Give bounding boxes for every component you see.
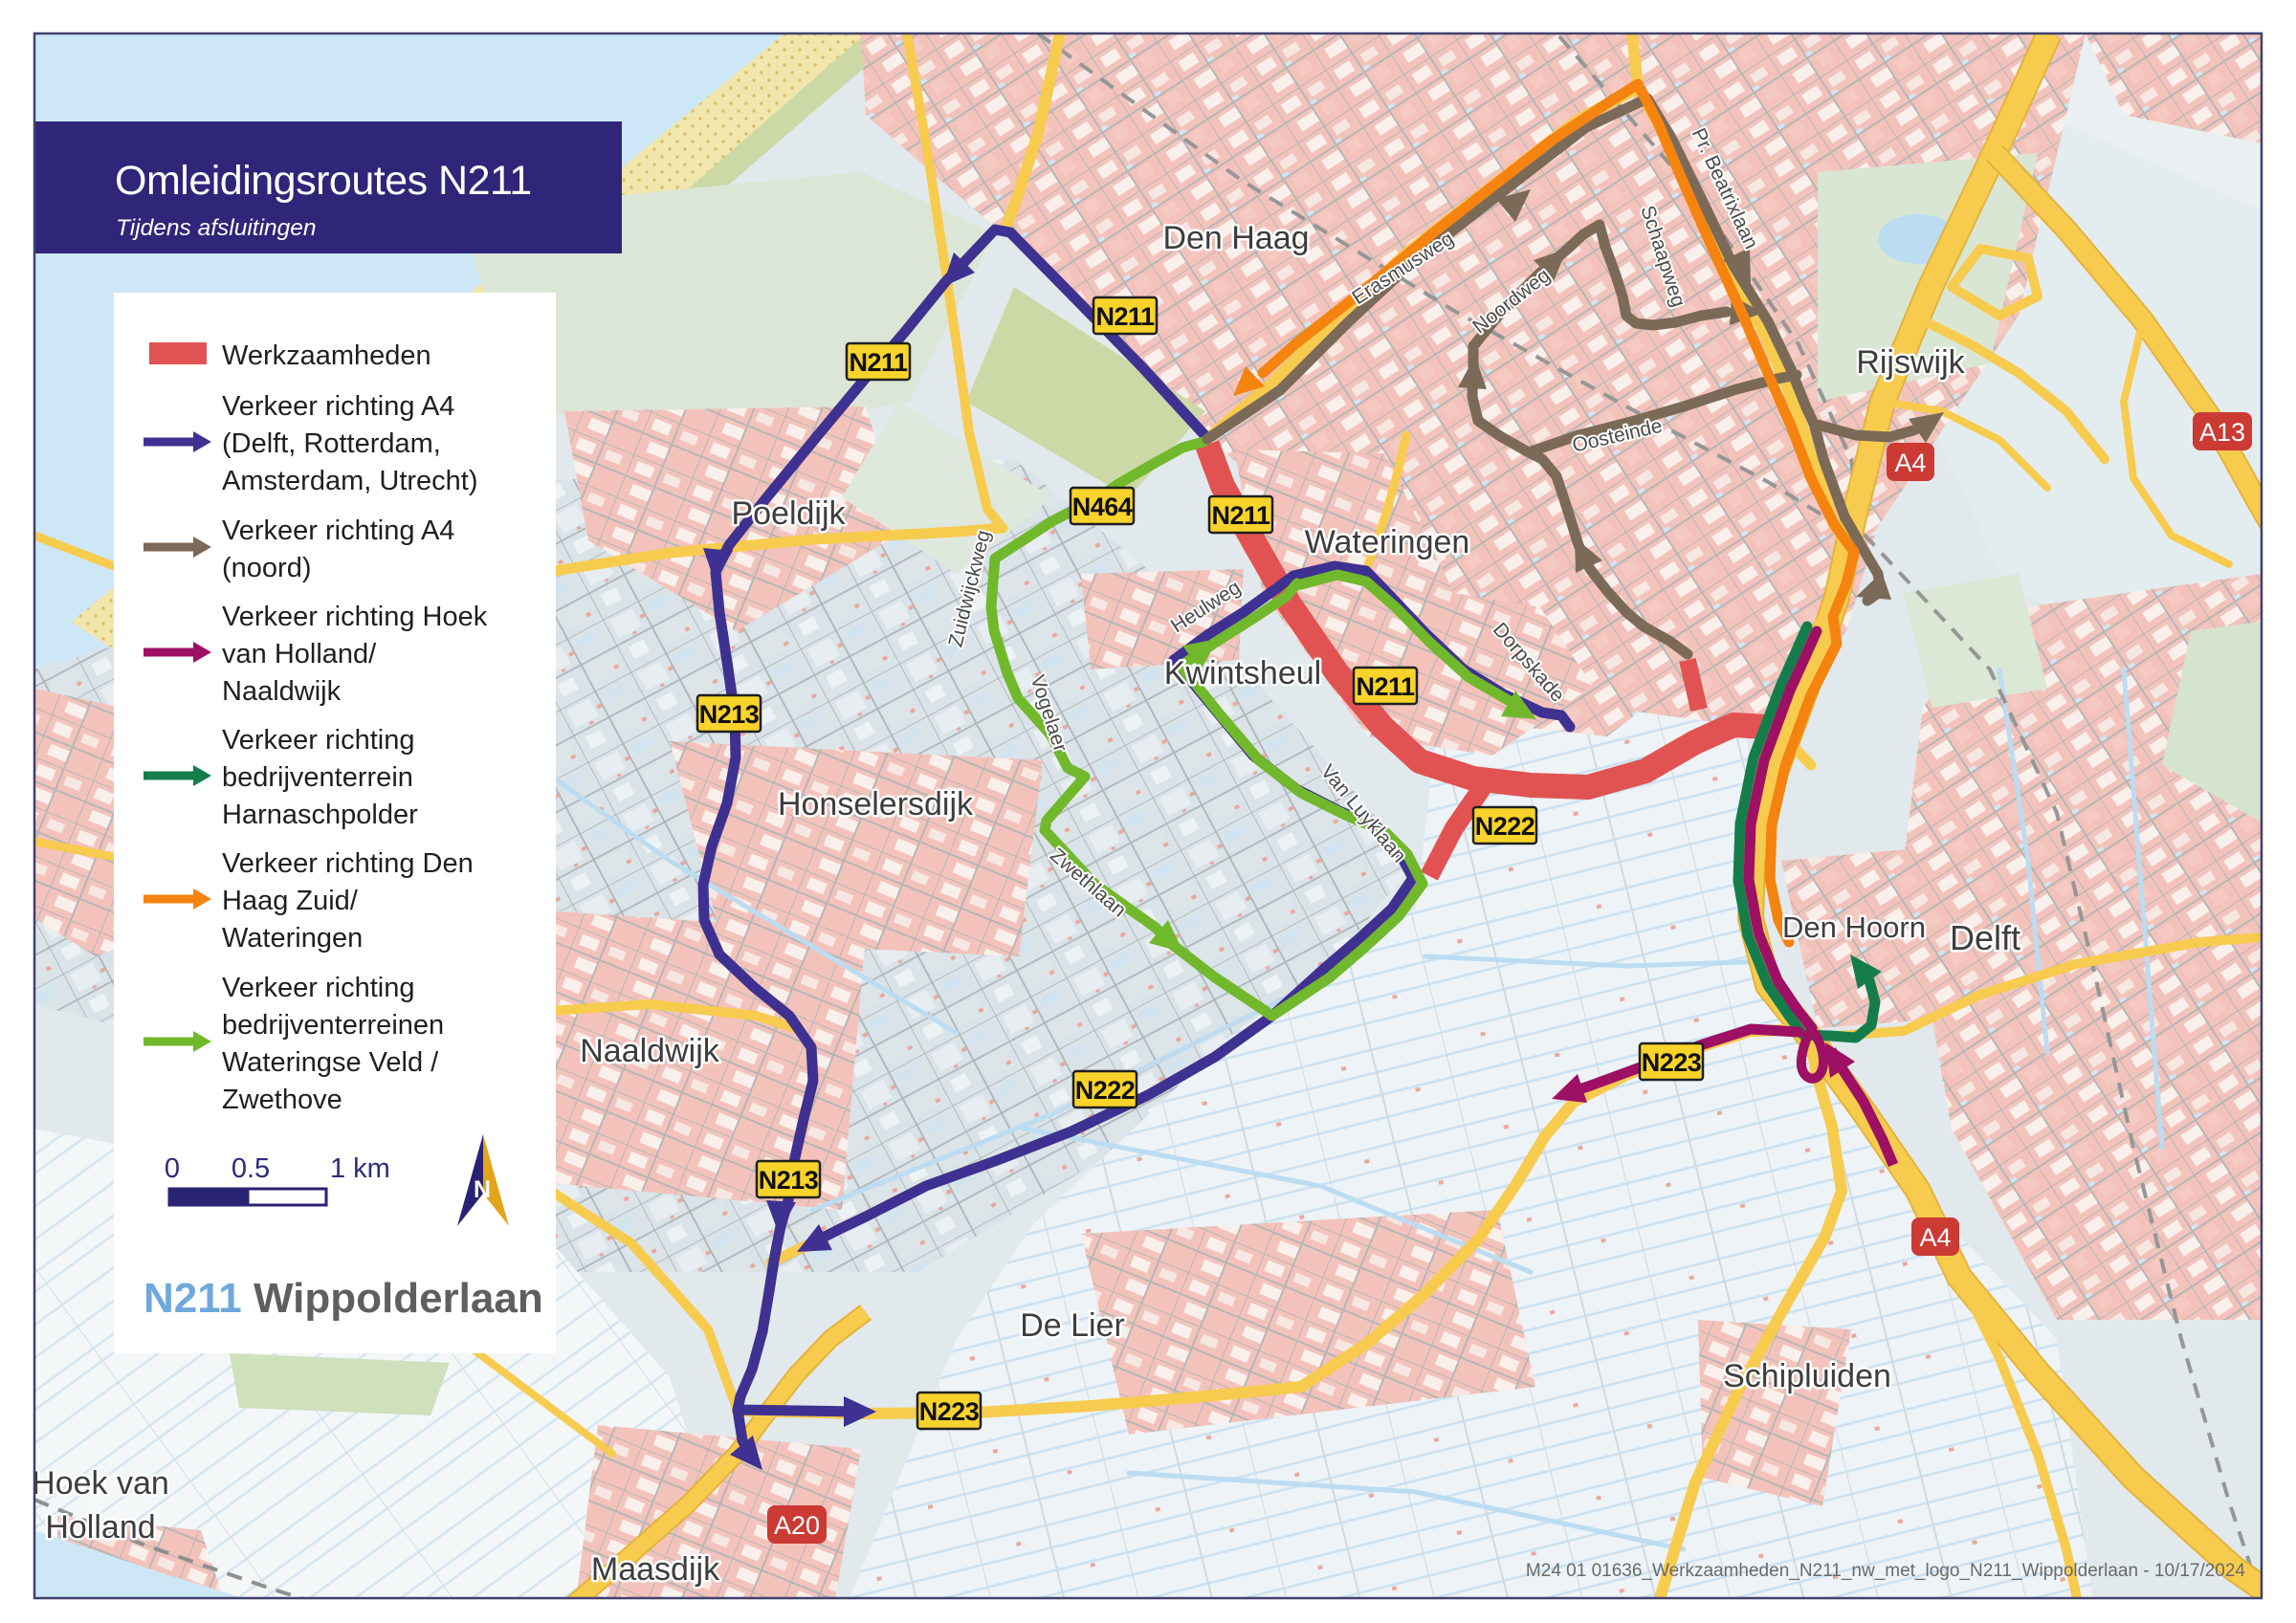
svg-text:N211: N211 <box>849 348 908 377</box>
svg-text:Haag Zuid/: Haag Zuid/ <box>222 886 359 916</box>
svg-text:N223: N223 <box>919 1397 980 1426</box>
svg-text:Verkeer richting Den: Verkeer richting Den <box>222 848 474 879</box>
svg-text:Naaldwijk: Naaldwijk <box>222 676 342 707</box>
svg-text:0: 0 <box>165 1153 180 1184</box>
svg-text:Harnaschpolder: Harnaschpolder <box>222 800 418 830</box>
svg-text:bedrijventerreinen: bedrijventerreinen <box>222 1010 444 1041</box>
svg-text:Wateringen: Wateringen <box>222 923 363 954</box>
svg-text:Wateringse Veld /: Wateringse Veld / <box>222 1047 439 1078</box>
svg-text:M24 01 01636_Werkzaamheden_N21: M24 01 01636_Werkzaamheden_N211_nw_met_l… <box>1526 1561 2246 1581</box>
svg-text:N223: N223 <box>1642 1048 1702 1077</box>
svg-text:Poeldijk: Poeldijk <box>731 495 846 532</box>
svg-text:Verkeer richting A4: Verkeer richting A4 <box>222 515 454 546</box>
svg-text:0.5: 0.5 <box>232 1153 270 1184</box>
svg-text:Werkzaamheden: Werkzaamheden <box>222 340 431 371</box>
svg-text:Holland: Holland <box>45 1509 155 1546</box>
svg-text:Zwethove: Zwethove <box>222 1085 342 1115</box>
svg-text:N213: N213 <box>759 1166 819 1195</box>
svg-text:Kwintsheul: Kwintsheul <box>1164 655 1321 691</box>
svg-text:Hoek van: Hoek van <box>32 1465 169 1502</box>
svg-text:Verkeer richting: Verkeer richting <box>222 725 415 756</box>
svg-text:N211: N211 <box>1095 302 1155 331</box>
svg-text:Verkeer richting A4: Verkeer richting A4 <box>222 391 454 422</box>
svg-text:N211 Wippolderlaan: N211 Wippolderlaan <box>143 1275 543 1322</box>
svg-text:Den Haag: Den Haag <box>1162 220 1309 256</box>
svg-text:Verkeer richting: Verkeer richting <box>222 973 415 1003</box>
svg-text:Maasdijk: Maasdijk <box>591 1551 720 1588</box>
svg-text:Naaldwijk: Naaldwijk <box>580 1033 719 1069</box>
svg-text:Omleidingsroutes N211: Omleidingsroutes N211 <box>115 158 532 204</box>
svg-text:Schipluiden: Schipluiden <box>1723 1358 1891 1394</box>
svg-text:N213: N213 <box>699 700 760 729</box>
svg-text:N464: N464 <box>1072 493 1133 521</box>
svg-text:N222: N222 <box>1475 812 1535 841</box>
svg-text:Honselersdijk: Honselersdijk <box>778 786 974 822</box>
svg-text:N: N <box>474 1176 491 1203</box>
svg-text:N211: N211 <box>1356 672 1415 701</box>
svg-text:Verkeer richting Hoek: Verkeer richting Hoek <box>222 602 488 632</box>
svg-text:(Delft, Rotterdam,: (Delft, Rotterdam, <box>222 428 441 459</box>
svg-text:van Holland/: van Holland/ <box>222 639 377 669</box>
svg-text:Rijswijk: Rijswijk <box>1856 344 1965 381</box>
svg-text:(noord): (noord) <box>222 553 312 583</box>
svg-text:1 km: 1 km <box>330 1153 390 1184</box>
svg-text:A13: A13 <box>2199 418 2245 447</box>
svg-text:N211: N211 <box>1211 501 1270 530</box>
svg-text:Wateringen: Wateringen <box>1305 524 1470 560</box>
svg-text:A20: A20 <box>774 1511 820 1540</box>
svg-text:A4: A4 <box>1894 449 1926 477</box>
svg-text:Tijdens afsluitingen: Tijdens afsluitingen <box>116 215 317 241</box>
svg-text:Amsterdam, Utrecht): Amsterdam, Utrecht) <box>222 466 478 496</box>
svg-text:A4: A4 <box>1919 1223 1951 1252</box>
svg-text:N222: N222 <box>1075 1076 1136 1105</box>
svg-text:bedrijventerrein: bedrijventerrein <box>222 762 413 793</box>
svg-text:De Lier: De Lier <box>1020 1307 1125 1344</box>
svg-text:Den Hoorn: Den Hoorn <box>1782 910 1926 944</box>
svg-text:Delft: Delft <box>1950 918 2020 957</box>
